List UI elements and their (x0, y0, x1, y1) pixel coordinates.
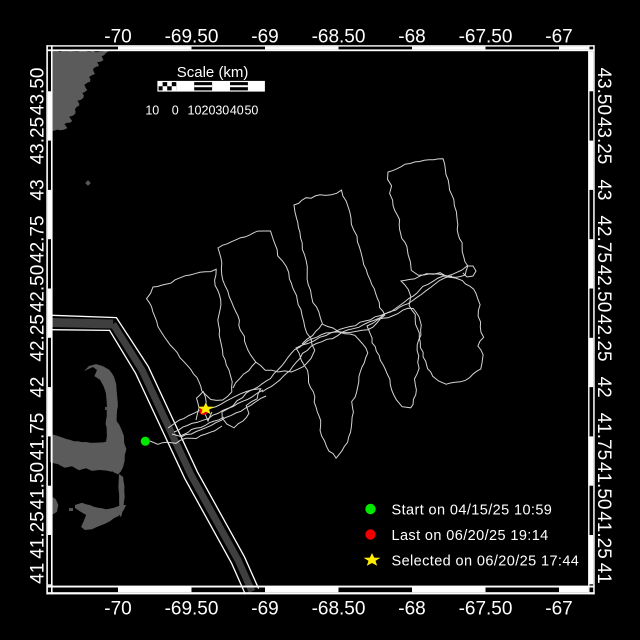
svg-text:-69.50: -69.50 (165, 599, 219, 620)
svg-text:43.50: 43.50 (593, 68, 614, 116)
svg-text:41.50: 41.50 (593, 462, 614, 510)
svg-text:Start on 04/15/25 10:59: Start on 04/15/25 10:59 (392, 503, 553, 519)
svg-text:42.50: 42.50 (593, 265, 614, 313)
svg-text:20: 20 (202, 104, 216, 118)
svg-text:-69: -69 (251, 599, 278, 620)
svg-text:10: 10 (188, 104, 202, 118)
svg-text:42.75: 42.75 (28, 215, 49, 263)
svg-text:43.50: 43.50 (28, 68, 49, 116)
svg-text:-67.50: -67.50 (459, 27, 513, 48)
svg-text:-67.50: -67.50 (459, 599, 513, 620)
svg-text:41.25: 41.25 (593, 511, 614, 559)
svg-text:42: 42 (28, 377, 49, 398)
svg-text:-70: -70 (104, 599, 131, 620)
svg-text:10: 10 (145, 104, 159, 118)
svg-text:43.25: 43.25 (593, 117, 614, 165)
svg-text:41: 41 (28, 563, 49, 584)
svg-text:-68: -68 (398, 599, 425, 620)
svg-text:40: 40 (230, 104, 244, 118)
svg-text:Last on 06/20/25 19:14: Last on 06/20/25 19:14 (392, 528, 549, 544)
svg-text:30: 30 (215, 104, 229, 118)
svg-text:-68: -68 (398, 27, 425, 48)
svg-text:41.25: 41.25 (28, 511, 49, 559)
svg-text:42.50: 42.50 (28, 265, 49, 313)
svg-text:43: 43 (593, 179, 614, 200)
svg-text:-69.50: -69.50 (165, 27, 219, 48)
svg-text:-69: -69 (251, 27, 278, 48)
svg-text:42: 42 (593, 377, 614, 398)
svg-text:41: 41 (593, 563, 614, 584)
svg-text:-68.50: -68.50 (312, 599, 366, 620)
svg-text:0: 0 (172, 104, 179, 118)
svg-text:41.75: 41.75 (593, 413, 614, 461)
svg-text:43: 43 (28, 179, 49, 200)
svg-text:42.25: 42.25 (28, 314, 49, 362)
svg-text:-68.50: -68.50 (312, 27, 366, 48)
svg-text:Selected on 06/20/25 17:44: Selected on 06/20/25 17:44 (392, 554, 580, 570)
svg-text:Scale (km): Scale (km) (177, 64, 249, 81)
svg-text:50: 50 (244, 104, 258, 118)
svg-text:-70: -70 (104, 27, 131, 48)
svg-text:-67: -67 (545, 27, 572, 48)
svg-text:42.25: 42.25 (593, 314, 614, 362)
svg-text:41.75: 41.75 (28, 413, 49, 461)
svg-text:43.25: 43.25 (28, 117, 49, 165)
svg-text:42.75: 42.75 (593, 215, 614, 263)
svg-text:41.50: 41.50 (28, 462, 49, 510)
svg-text:-67: -67 (545, 599, 572, 620)
